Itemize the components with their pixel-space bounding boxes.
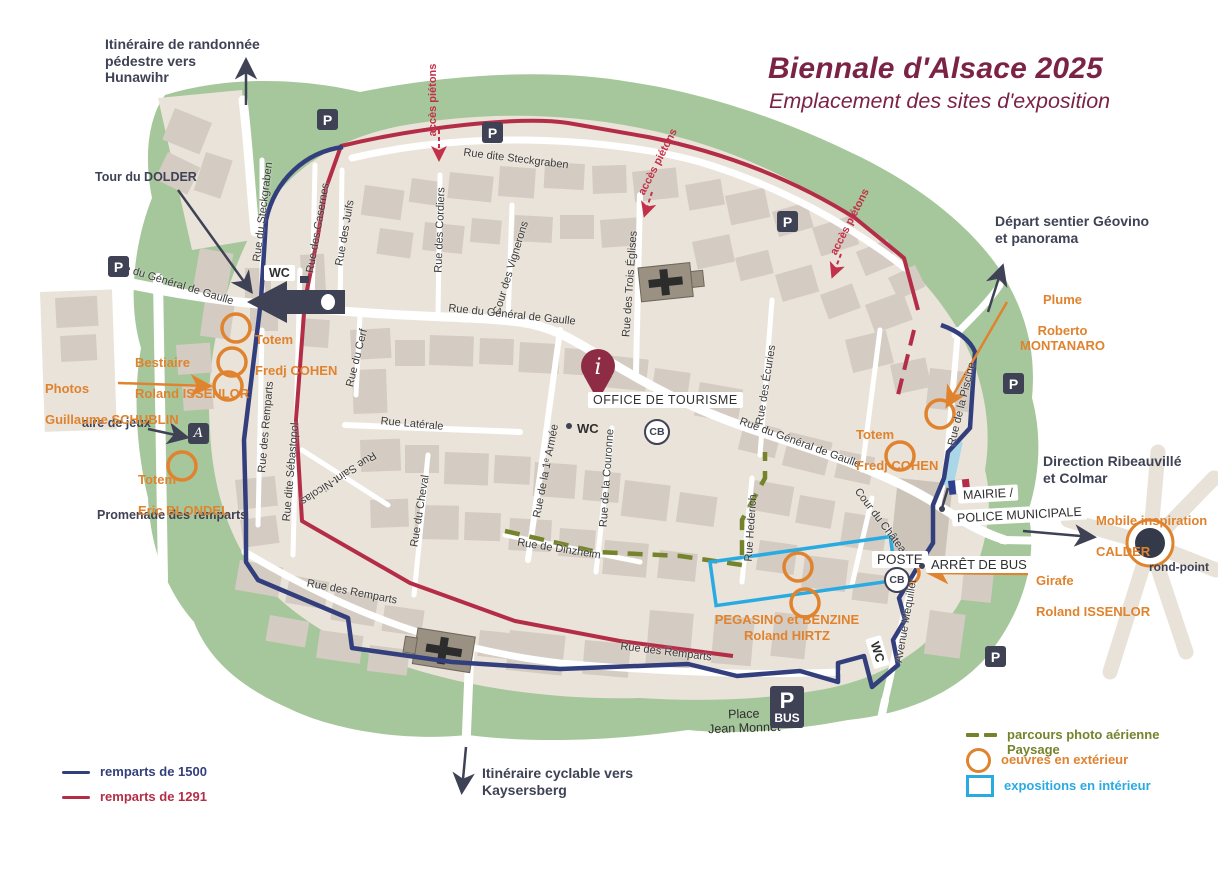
artwork-label-totem-cohen-east: Totem Fredj COHEN <box>856 411 938 489</box>
artwork-artist: Eric BLONDEL <box>138 503 229 519</box>
parking-bus-p: P <box>780 690 795 712</box>
artwork-artist: Roland HIRTZ <box>715 628 859 644</box>
playground-icon: A <box>188 423 209 444</box>
parking-bus-bus: BUS <box>774 712 799 724</box>
artwork-artist: Guillaume SCHUBLIN <box>45 412 179 428</box>
artwork-work: Totem <box>138 472 229 488</box>
dash <box>966 733 979 737</box>
dash <box>984 733 997 737</box>
artwork-work: Mobile inspiration <box>1096 513 1207 529</box>
legend-label: expositions en intérieur <box>1004 779 1151 794</box>
page-title: Biennale d'Alsace 2025 <box>768 52 1103 86</box>
direction-dolder: Tour du DOLDER <box>95 170 197 184</box>
artwork-artist: Fredj COHEN <box>255 363 337 379</box>
legend-label: remparts de 1500 <box>100 765 207 780</box>
parking-icon: P <box>777 211 798 232</box>
legend-dash-sample <box>966 733 997 737</box>
artwork-label-totem-blondel: Totem Eric BLONDEL <box>138 456 229 534</box>
parking-icon: P <box>985 646 1006 667</box>
cb-badge: CB <box>884 567 910 593</box>
office-tourisme-label: OFFICE DE TOURISME <box>588 392 743 408</box>
legend-circle-sample <box>966 748 991 773</box>
parking-bus-icon: P BUS <box>770 686 804 728</box>
arret-bus-label: ARRÊT DE BUS <box>926 556 1032 573</box>
direction-geovino: Départ sentier Géovino et panorama <box>995 213 1149 246</box>
legend-line-red <box>62 796 90 800</box>
legend-line-blue <box>62 771 90 775</box>
direction-ribeauville: Direction Ribeauvillé et Colmar <box>1043 453 1181 486</box>
artwork-label-totem-cohen-west: Totem Fredj COHEN <box>255 316 337 394</box>
artwork-artist: Roberto MONTANARO <box>1005 323 1120 354</box>
legend-label: remparts de 1291 <box>100 790 207 805</box>
wc-label: WC <box>577 421 599 436</box>
artwork-label-mobile-calder: Mobile inspiration CALDER <box>1096 497 1207 575</box>
artwork-work: PEGASINO et BENZINE <box>715 612 859 628</box>
svg-text:i: i <box>594 355 601 380</box>
direction-hunawihr: Itinéraire de randonnée pédestre vers Hu… <box>105 36 260 86</box>
artwork-artist: Roland ISSENLOR <box>1036 604 1150 620</box>
wc-dot <box>566 423 572 429</box>
artwork-work: Totem <box>856 427 938 443</box>
artwork-work: Photos <box>45 381 179 397</box>
legend-label: oeuvres en extérieur <box>1001 753 1128 768</box>
legend-expositions: expositions en intérieur <box>966 775 1151 797</box>
wc-label: WC <box>264 265 295 281</box>
artwork-label-plume-montanaro: Plume Roberto MONTANARO <box>1005 276 1120 370</box>
legend-ramparts-1500: remparts de 1500 <box>62 765 207 780</box>
mairie-label: MAIRIE / <box>958 484 1019 503</box>
artwork-artist: Fredj COHEN <box>856 458 938 474</box>
legend-square-sample <box>966 775 994 797</box>
artwork-label-photos-schublin: Photos Guillaume SCHUBLIN <box>45 365 179 443</box>
artwork-artist: CALDER <box>1096 544 1207 560</box>
parking-icon: P <box>108 256 129 277</box>
artwork-label-pegasino-hirtz: PEGASINO et BENZINE Roland HIRTZ <box>715 612 859 643</box>
acces-pietons-label: accès piétons <box>427 64 439 137</box>
cb-badge: CB <box>644 419 670 445</box>
parking-icon: P <box>317 109 338 130</box>
artwork-work: Totem <box>255 332 337 348</box>
arret-bus-dot <box>919 563 925 569</box>
artwork-work: Plume <box>1005 292 1120 308</box>
legend-ramparts-1291: remparts de 1291 <box>62 790 207 805</box>
page-subtitle: Emplacement des sites d'exposition <box>769 89 1110 114</box>
map-poster: i Biennale d'Alsace 2025 Emplacement des… <box>0 0 1218 870</box>
direction-kaysersberg: Itinéraire cyclable vers Kaysersberg <box>482 765 633 798</box>
legend-oeuvres: oeuvres en extérieur <box>966 748 1128 773</box>
parking-icon: P <box>1003 373 1024 394</box>
parking-icon: P <box>482 122 503 143</box>
